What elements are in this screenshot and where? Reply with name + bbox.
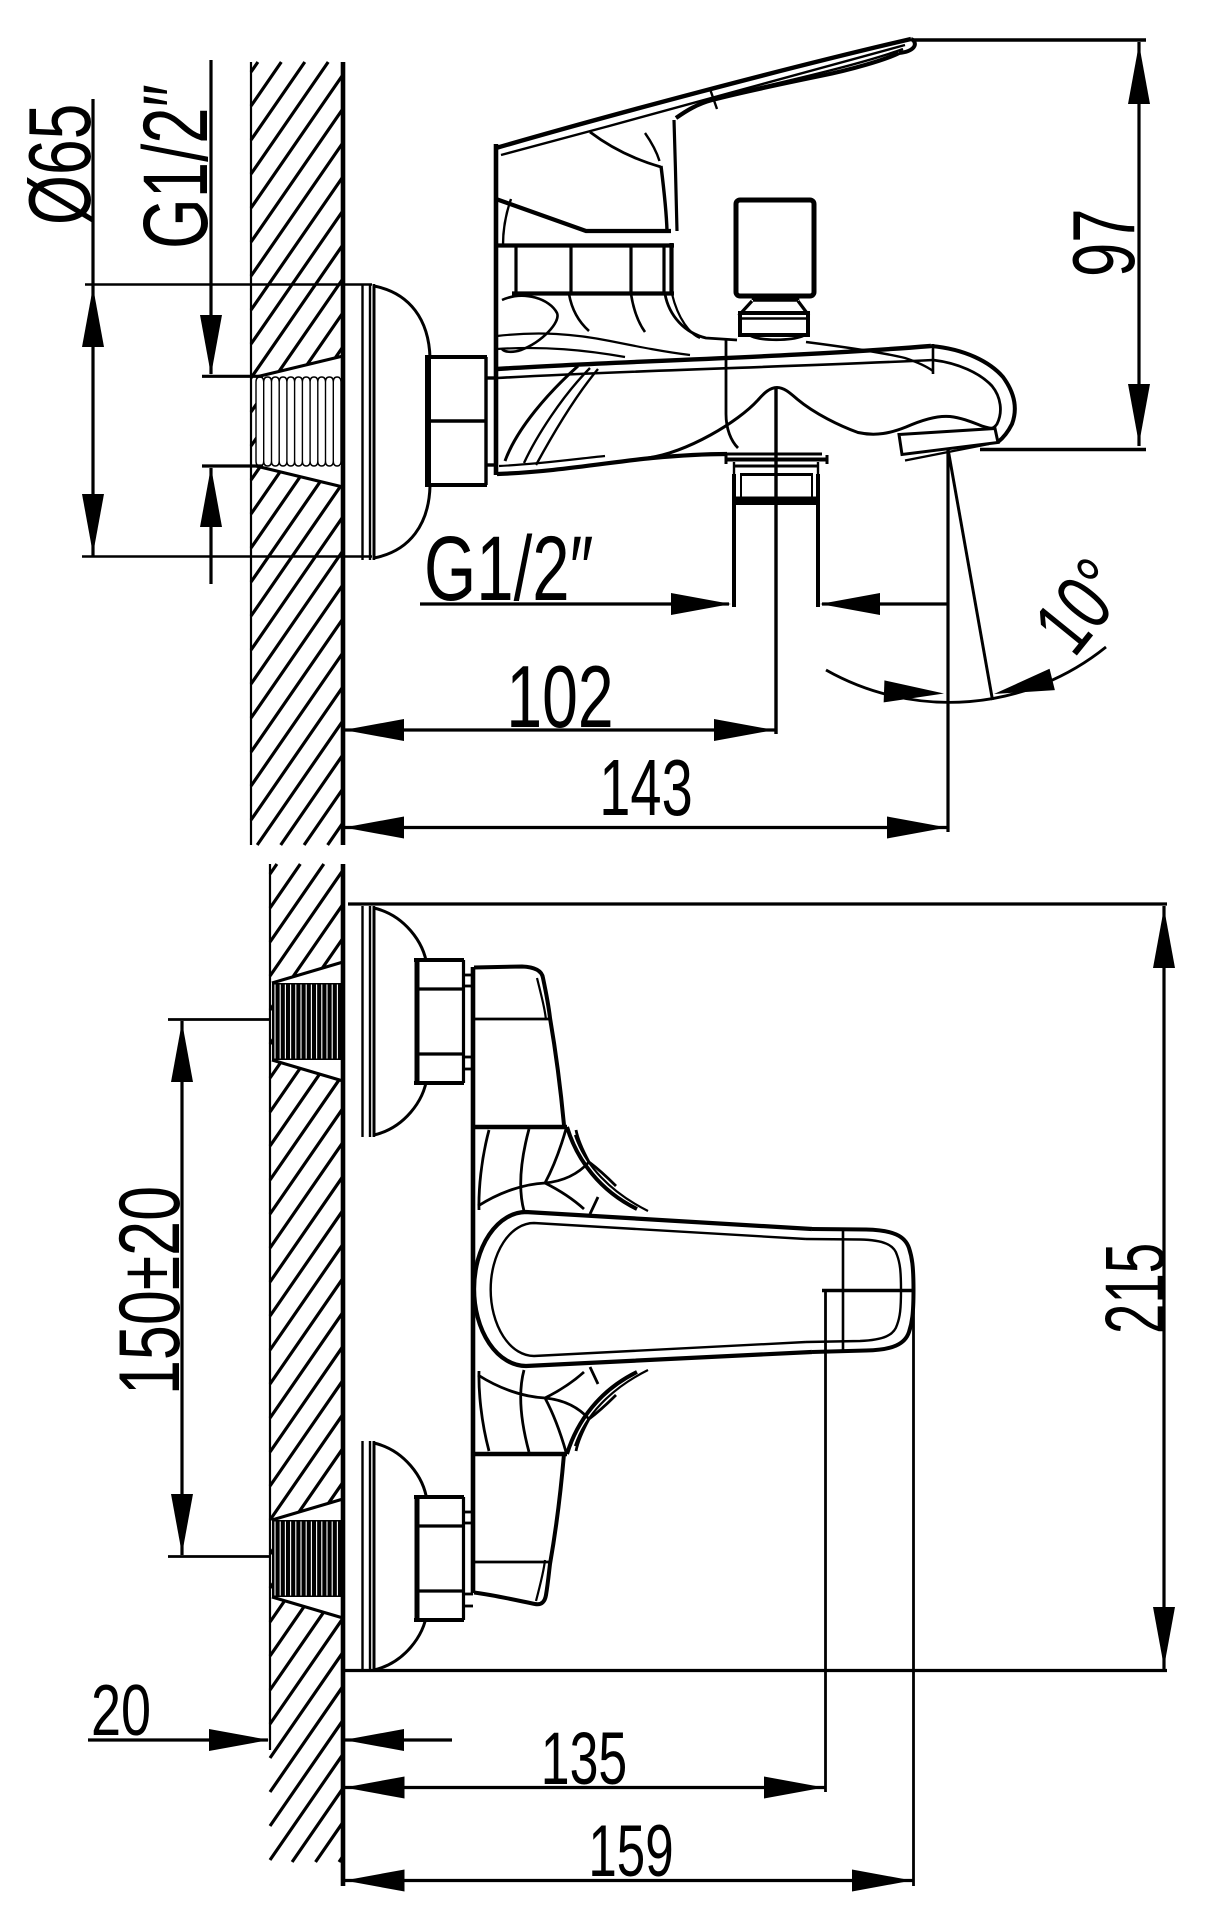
svg-text:G1/2″: G1/2″	[124, 84, 227, 249]
svg-text:102: 102	[506, 648, 613, 746]
svg-text:135: 135	[541, 1717, 627, 1800]
svg-text:143: 143	[599, 742, 692, 832]
svg-text:150±20: 150±20	[101, 1186, 197, 1395]
svg-text:215: 215	[1089, 1243, 1183, 1334]
svg-text:Ø65: Ø65	[11, 104, 109, 225]
svg-text:159: 159	[588, 1811, 673, 1892]
svg-text:97: 97	[1055, 208, 1153, 277]
